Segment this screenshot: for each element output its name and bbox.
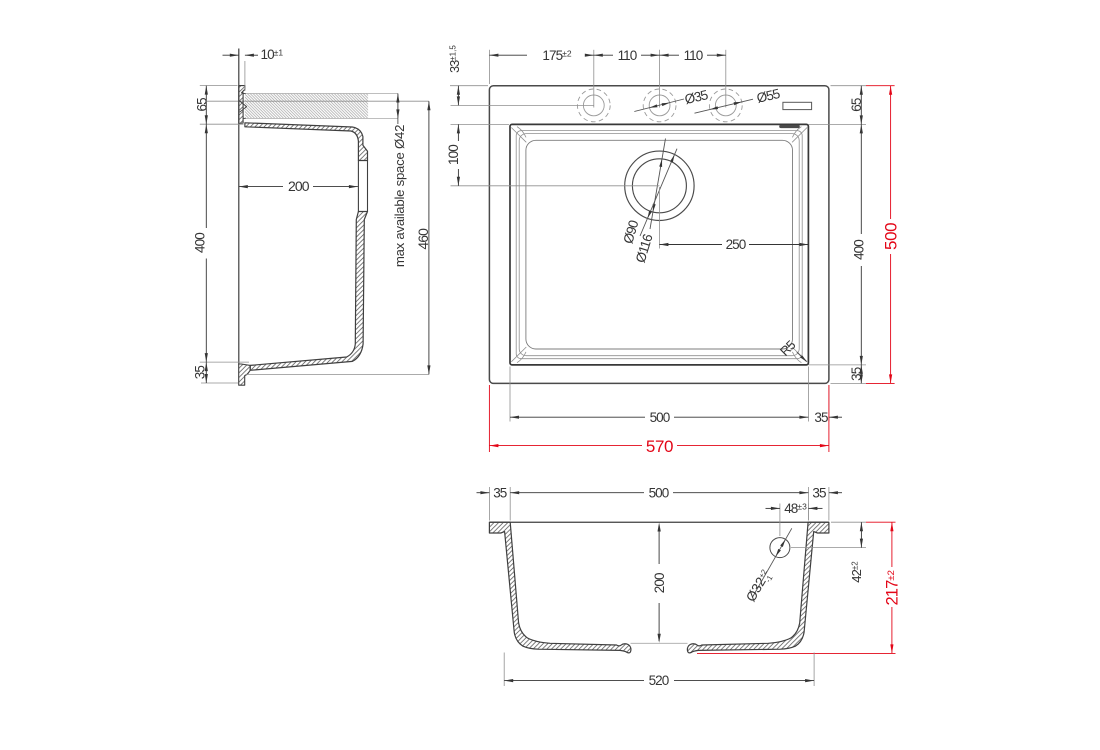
svg-text:200: 200 xyxy=(652,573,667,593)
svg-text:520: 520 xyxy=(649,673,669,688)
svg-text:35: 35 xyxy=(814,410,828,425)
svg-text:35: 35 xyxy=(192,366,207,380)
svg-text:500: 500 xyxy=(882,223,901,250)
svg-text:100: 100 xyxy=(446,145,461,165)
svg-text:35: 35 xyxy=(812,485,826,500)
svg-text:250: 250 xyxy=(726,237,746,252)
svg-text:110: 110 xyxy=(618,48,637,63)
svg-text:400: 400 xyxy=(852,240,867,260)
svg-text:460: 460 xyxy=(415,228,431,250)
svg-text:400: 400 xyxy=(192,233,207,253)
svg-text:110: 110 xyxy=(684,48,703,63)
svg-text:65: 65 xyxy=(195,98,210,112)
svg-text:35: 35 xyxy=(493,485,507,500)
svg-text:570: 570 xyxy=(646,437,673,456)
svg-text:65: 65 xyxy=(849,98,864,112)
svg-text:500: 500 xyxy=(650,410,670,425)
svg-text:500: 500 xyxy=(649,485,669,500)
svg-text:200: 200 xyxy=(288,178,310,194)
svg-text:max available space Ø42: max available space Ø42 xyxy=(392,125,407,267)
svg-text:35: 35 xyxy=(849,367,864,381)
